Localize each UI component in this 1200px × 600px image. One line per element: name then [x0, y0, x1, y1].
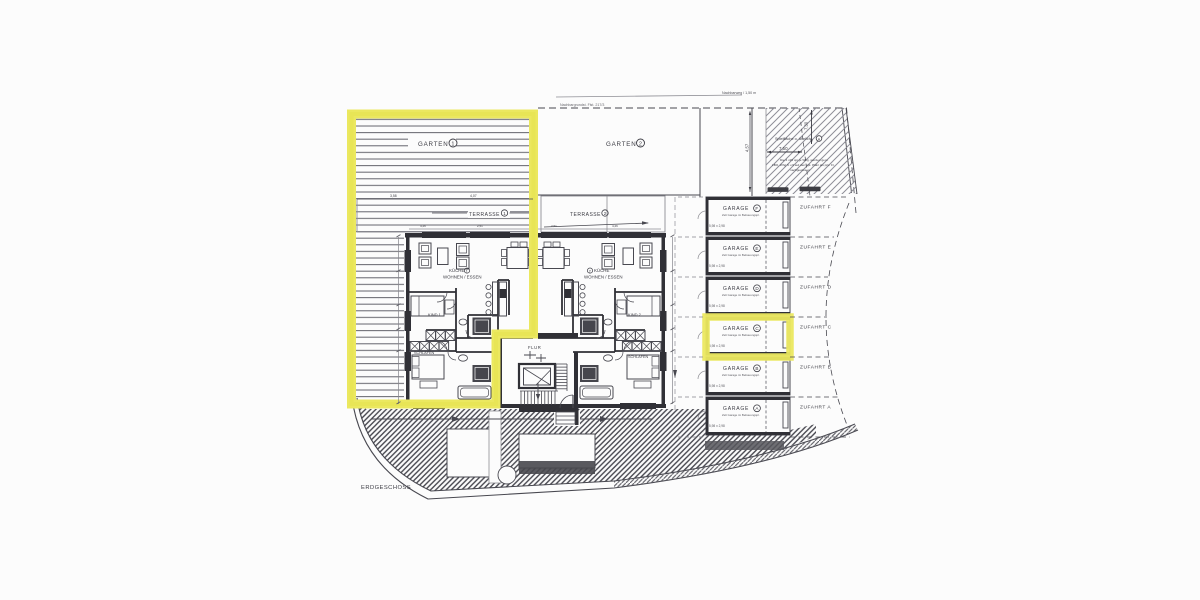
svg-text:Zelt Garage im Bebauungspl.: Zelt Garage im Bebauungspl. — [722, 333, 760, 337]
svg-text:ZUFAHRT B: ZUFAHRT B — [800, 365, 831, 371]
svg-text:GARAGE: GARAGE — [723, 206, 749, 212]
svg-text:KIND 2: KIND 2 — [628, 312, 642, 317]
svg-text:7,30: 7,30 — [804, 121, 809, 130]
svg-text:TERRASSE: TERRASSE — [570, 212, 601, 218]
svg-text:LBO, Whg 5 u 6 auf den opt. Pl: LBO, Whg 5 u 6 auf den opt. Platz als pr… — [772, 163, 835, 167]
svg-text:Spielfläche o. ähnlich: Spielfläche o. ähnlich — [775, 137, 811, 141]
svg-text:2: 2 — [589, 269, 591, 273]
svg-text:ZUFAHRT C: ZUFAHRT C — [800, 325, 832, 331]
svg-text:2,51: 2,51 — [477, 224, 483, 228]
svg-text:Zelt Garage im Bebauungspl.: Zelt Garage im Bebauungspl. — [722, 373, 760, 377]
svg-text:KÜCHE: KÜCHE — [594, 268, 609, 273]
svg-text:ERDGESCHOSS: ERDGESCHOSS — [361, 485, 411, 491]
svg-text:GARTEN: GARTEN — [418, 141, 448, 148]
svg-text:7,50: 7,50 — [779, 146, 788, 151]
svg-text:3,58: 3,58 — [390, 194, 397, 198]
svg-text:5,98 x 2,98: 5,98 x 2,98 — [709, 304, 725, 308]
svg-text:GARAGE: GARAGE — [723, 326, 749, 332]
svg-text:GARAGE: GARAGE — [723, 366, 749, 372]
svg-text:B: B — [755, 366, 758, 371]
svg-text:2: 2 — [639, 142, 642, 148]
svg-text:1: 1 — [451, 142, 454, 148]
svg-text:KIND 1: KIND 1 — [428, 312, 442, 317]
svg-text:4,07: 4,07 — [470, 194, 477, 198]
svg-text:Zelt Garage im Bebauungspl.: Zelt Garage im Bebauungspl. — [722, 253, 760, 257]
svg-text:WOHNEN / ESSEN: WOHNEN / ESSEN — [584, 275, 623, 280]
svg-text:Zelt Garage im Bebauungspl.: Zelt Garage im Bebauungspl. — [722, 293, 760, 297]
svg-text:WOHNEN / ESSEN: WOHNEN / ESSEN — [443, 275, 482, 280]
svg-text:4,26: 4,26 — [612, 224, 618, 228]
svg-text:KÜCHE: KÜCHE — [449, 268, 464, 273]
svg-text:Die 4 x25 qm je Whg. werden ge: Die 4 x25 qm je Whg. werden gem. — [780, 158, 828, 162]
svg-text:FLUR: FLUR — [528, 345, 541, 350]
svg-text:SCHLAFEN: SCHLAFEN — [628, 355, 649, 359]
svg-text:5,98 x 2,98: 5,98 x 2,98 — [709, 224, 725, 228]
svg-text:SCHLAFEN: SCHLAFEN — [414, 351, 435, 355]
svg-text:GARAGE: GARAGE — [723, 246, 749, 252]
svg-text:GARAGE: GARAGE — [723, 406, 749, 412]
svg-text:1: 1 — [466, 269, 468, 273]
svg-text:nachgewiesen: nachgewiesen — [790, 168, 810, 172]
svg-text:GARTEN: GARTEN — [606, 141, 636, 148]
svg-text:5,98 x 2,98: 5,98 x 2,98 — [709, 424, 725, 428]
svg-text:Zelt Garage im Bebauungspl.: Zelt Garage im Bebauungspl. — [722, 213, 760, 217]
svg-text:2,51: 2,51 — [551, 224, 557, 228]
svg-text:ZUFAHRT F: ZUFAHRT F — [800, 205, 831, 211]
svg-text:5,98 x 2,98: 5,98 x 2,98 — [709, 264, 725, 268]
svg-text:TERRASSE: TERRASSE — [469, 212, 500, 218]
svg-text:4,26: 4,26 — [420, 224, 426, 228]
svg-text:4,57: 4,57 — [745, 143, 750, 152]
svg-text:ZUFAHRT D: ZUFAHRT D — [800, 285, 832, 291]
svg-text:5,98 x 2,98: 5,98 x 2,98 — [709, 344, 725, 348]
svg-text:F: F — [755, 206, 758, 211]
svg-text:ZUFAHRT A: ZUFAHRT A — [800, 405, 831, 411]
svg-text:ZUFAHRT E: ZUFAHRT E — [800, 245, 831, 251]
svg-text:Nachbarweg / 1,50 m: Nachbarweg / 1,50 m — [722, 91, 756, 95]
svg-text:Zelt Garage im Bebauungspl.: Zelt Garage im Bebauungspl. — [722, 413, 760, 417]
svg-text:E: E — [755, 246, 758, 251]
svg-text:5,98 x 2,98: 5,98 x 2,98 — [709, 384, 725, 388]
svg-text:Nachbargrundst. Flst. 217/3: Nachbargrundst. Flst. 217/3 — [560, 103, 604, 107]
svg-text:GARAGE: GARAGE — [723, 286, 749, 292]
